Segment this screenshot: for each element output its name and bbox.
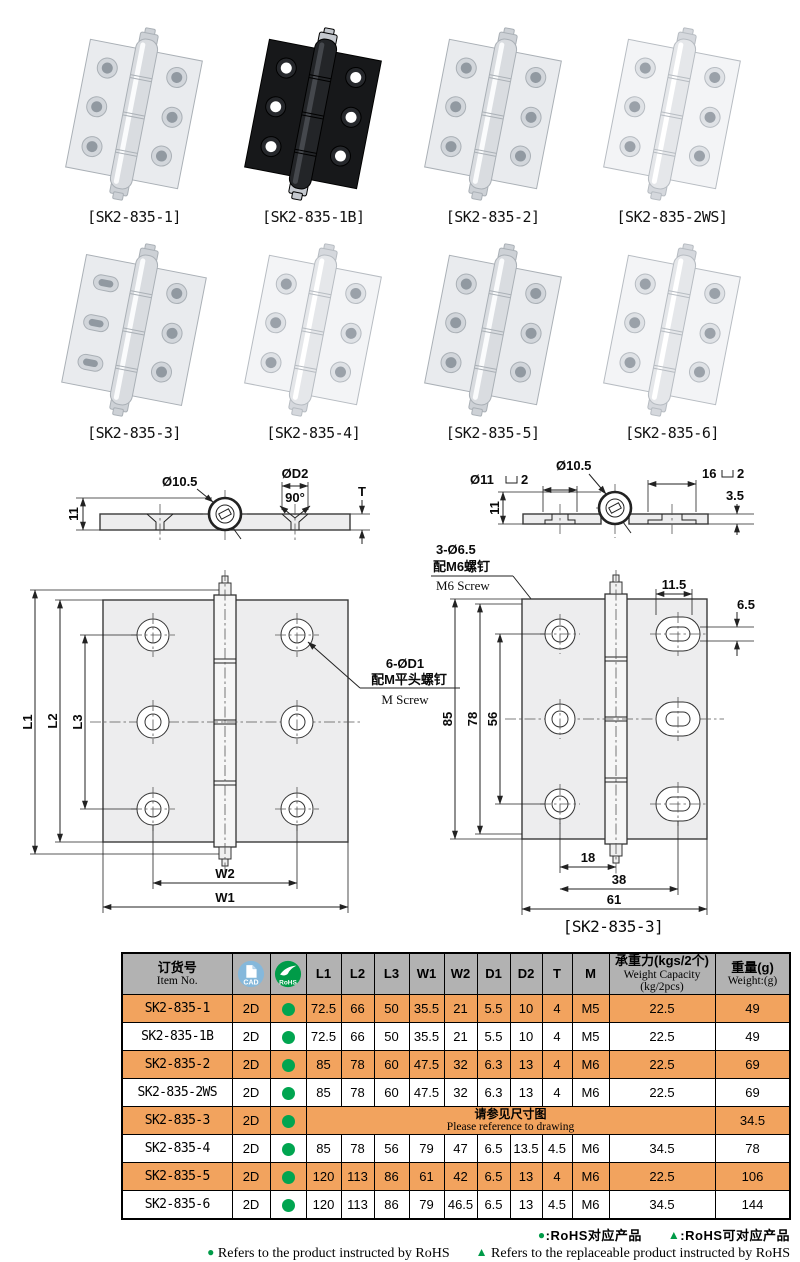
cell-l2: 66: [341, 995, 374, 1023]
cell-t: 4: [542, 1163, 572, 1191]
cell-w2: 21: [444, 1023, 477, 1051]
drawing-cross-section-right: Ø11 2 Ø10.5 16 2 3.5 11: [470, 458, 754, 538]
product-card-sk2-835-6: [SK2-835-6]: [590, 240, 754, 442]
cell-w1: 47.5: [409, 1051, 444, 1079]
cell-weight: 78: [715, 1135, 790, 1163]
cell-l3: 50: [374, 995, 409, 1023]
product-label: [SK2-835-1]: [52, 208, 216, 226]
cell-l1: 72.5: [306, 995, 341, 1023]
table-row-sk2-835-5: SK2-835-5 2D 120 113 86 61 42 6.5 13 4 M…: [122, 1163, 790, 1191]
product-label: [SK2-835-6]: [590, 424, 754, 442]
table-row-sk2-835-2ws: SK2-835-2WS 2D 85 78 60 47.5 32 6.3 13 4…: [122, 1079, 790, 1107]
drawing-cross-section-left: 11 Ø10.5 ØD2 90° T: [66, 466, 370, 544]
drawing-front-view-left: L1 L2 L3 W2 W1 6-ØD1 配M平头螺钉 M Screw: [20, 570, 460, 913]
cell-w2: 32: [444, 1079, 477, 1107]
cell-drawing-note: 请参见尺寸图 Please reference to drawing: [306, 1107, 715, 1135]
cell-item: SK2-835-1: [122, 995, 232, 1023]
table-row-sk2-835-2: SK2-835-2 2D 85 78 60 47.5 32 6.3 13 4 M…: [122, 1051, 790, 1079]
cell-l3: 60: [374, 1079, 409, 1107]
product-gallery: [SK2-835-1] [SK2-835-1B] [SK2-835-2] [SK…: [0, 0, 800, 442]
product-label: [SK2-835-4]: [231, 424, 395, 442]
table-row-sk2-835-6: SK2-835-6 2D 120 113 86 79 46.5 6.5 13 4…: [122, 1191, 790, 1220]
cell-w1: 35.5: [409, 995, 444, 1023]
product-card-sk2-835-2: [SK2-835-2]: [411, 24, 575, 226]
dim-L3: L3: [70, 714, 85, 729]
rohs-dot: [282, 1199, 295, 1212]
cell-m: M5: [572, 995, 609, 1023]
cell-t: 4: [542, 1079, 572, 1107]
col-item-no: 订货号 Item No.: [122, 953, 232, 995]
spec-table: 订货号 Item No. CAD RoHS: [121, 952, 791, 1220]
cell-d1: 5.5: [477, 995, 510, 1023]
cell-cad: 2D: [232, 1191, 270, 1220]
table-row-sk2-835-1b: SK2-835-1B 2D 72.5 66 50 35.5 21 5.5 10 …: [122, 1023, 790, 1051]
cell-w1: 79: [409, 1135, 444, 1163]
cell-capacity: 22.5: [609, 1023, 715, 1051]
cell-l1: 120: [306, 1163, 341, 1191]
cell-d1: 6.3: [477, 1051, 510, 1079]
col-w1: W1: [409, 953, 444, 995]
hinge-photo: [238, 240, 388, 420]
cell-w2: 21: [444, 995, 477, 1023]
table-row-sk2-835-4: SK2-835-4 2D 85 78 56 79 47 6.5 13.5 4.5…: [122, 1135, 790, 1163]
product-card-sk2-835-3: [SK2-835-3]: [52, 240, 216, 442]
dim-11-5: 11.5: [662, 577, 687, 592]
cell-item: SK2-835-2: [122, 1051, 232, 1079]
cell-l2: 78: [341, 1051, 374, 1079]
cell-cad: 2D: [232, 1079, 270, 1107]
green-triangle-icon: ▲: [668, 1228, 680, 1242]
green-dot-icon: ●: [207, 1245, 214, 1259]
cell-m: M6: [572, 1191, 609, 1220]
rohs-dot: [282, 1003, 295, 1016]
table-header-row: 订货号 Item No. CAD RoHS: [122, 953, 790, 995]
cell-l3: 50: [374, 1023, 409, 1051]
col-m: M: [572, 953, 609, 995]
col-d1: D1: [477, 953, 510, 995]
callout-hole-spec: 3-Ø6.5: [436, 542, 476, 557]
dim-counterbore-diameter: Ø11: [470, 472, 494, 487]
cell-m: M6: [572, 1163, 609, 1191]
cell-t: 4.5: [542, 1135, 572, 1163]
cell-m: M5: [572, 1023, 609, 1051]
cell-weight: 106: [715, 1163, 790, 1191]
cell-rohs: [270, 1023, 306, 1051]
cell-l1: 85: [306, 1079, 341, 1107]
dim-slot-counterbore-width: 16: [702, 466, 716, 481]
cell-d2: 13.5: [510, 1135, 542, 1163]
cell-l1: 120: [306, 1191, 341, 1220]
cell-cad: 2D: [232, 1051, 270, 1079]
cell-weight: 144: [715, 1191, 790, 1220]
dim-L2: L2: [45, 713, 60, 728]
dim-18: 18: [581, 850, 595, 865]
cell-cad: 2D: [232, 1107, 270, 1135]
col-w2: W2: [444, 953, 477, 995]
cell-item: SK2-835-6: [122, 1191, 232, 1220]
cell-m: M6: [572, 1135, 609, 1163]
cell-l3: 86: [374, 1163, 409, 1191]
cell-capacity: 34.5: [609, 1191, 715, 1220]
drawing-caption: [SK2-835-3]: [563, 917, 663, 936]
product-row-2: [SK2-835-3] [SK2-835-4] [SK2-835-5] [SK2…: [52, 240, 754, 442]
dim-78: 78: [465, 712, 480, 726]
table-row-sk2-835-3: SK2-835-3 2D 请参见尺寸图 Please reference to …: [122, 1107, 790, 1135]
spec-section: 订货号 Item No. CAD RoHS: [121, 952, 790, 1220]
cell-item: SK2-835-4: [122, 1135, 232, 1163]
col-l1: L1: [306, 953, 341, 995]
rohs-dot: [282, 1143, 295, 1156]
cell-rohs: [270, 1079, 306, 1107]
hinge-photo: [418, 240, 568, 420]
hinge-photo: [238, 24, 388, 204]
dim-L1: L1: [20, 714, 35, 729]
dim-W2: W2: [215, 866, 235, 881]
green-dot-icon: ●: [538, 1228, 546, 1242]
cell-capacity: 22.5: [609, 995, 715, 1023]
cell-capacity: 34.5: [609, 1135, 715, 1163]
cell-w1: 35.5: [409, 1023, 444, 1051]
dim-pin-diameter-right: Ø10.5: [556, 458, 591, 473]
product-card-sk2-835-4: [SK2-835-4]: [231, 240, 395, 442]
cell-d1: 6.5: [477, 1163, 510, 1191]
col-t: T: [542, 953, 572, 995]
product-label: [SK2-835-3]: [52, 424, 216, 442]
cell-l3: 86: [374, 1191, 409, 1220]
cell-m: M6: [572, 1079, 609, 1107]
cell-weight: 69: [715, 1079, 790, 1107]
dim-thickness: T: [358, 484, 366, 499]
cell-cad: 2D: [232, 1135, 270, 1163]
dim-61: 61: [607, 892, 621, 907]
cell-l1: 85: [306, 1051, 341, 1079]
product-label: [SK2-835-5]: [411, 424, 575, 442]
rohs-dot: [282, 1087, 295, 1100]
cell-capacity: 22.5: [609, 1079, 715, 1107]
hinge-photo: [59, 240, 209, 420]
hinge-photo: [59, 24, 209, 204]
rohs-dot: [282, 1031, 295, 1044]
product-card-sk2-835-5: [SK2-835-5]: [411, 240, 575, 442]
cell-item: SK2-835-2WS: [122, 1079, 232, 1107]
cell-cad: 2D: [232, 1023, 270, 1051]
rohs-dot: [282, 1059, 295, 1072]
rohs-icon: RoHS: [274, 960, 302, 988]
hinge-photo: [597, 240, 747, 420]
dim-pin-diameter: Ø10.5: [162, 474, 197, 489]
cell-capacity: 22.5: [609, 1051, 715, 1079]
col-d2: D2: [510, 953, 542, 995]
cell-rohs: [270, 1191, 306, 1220]
product-card-sk2-835-1: [SK2-835-1]: [52, 24, 216, 226]
hinge-photo: [597, 24, 747, 204]
cell-weight: 49: [715, 1023, 790, 1051]
cad-icon: CAD: [237, 960, 265, 988]
callout-screw-en: M6 Screw: [436, 578, 490, 593]
cell-w1: 61: [409, 1163, 444, 1191]
callout-screw-cn-left: 配M平头螺钉: [371, 672, 447, 687]
cell-w2: 46.5: [444, 1191, 477, 1220]
col-rohs: RoHS: [270, 953, 306, 995]
dim-overall-height: 11: [66, 507, 81, 521]
cell-l2: 66: [341, 1023, 374, 1051]
cell-t: 4.5: [542, 1191, 572, 1220]
dim-38: 38: [612, 872, 626, 887]
cell-capacity: 22.5: [609, 1163, 715, 1191]
product-label: [SK2-835-2WS]: [590, 208, 754, 226]
cell-t: 4: [542, 995, 572, 1023]
col-l2: L2: [341, 953, 374, 995]
dim-6-5: 6.5: [737, 597, 755, 612]
cell-l3: 60: [374, 1051, 409, 1079]
cell-rohs: [270, 1107, 306, 1135]
dim-countersink-diameter: ØD2: [282, 466, 309, 481]
cell-rohs: [270, 1163, 306, 1191]
cell-d1: 6.3: [477, 1079, 510, 1107]
green-triangle-icon: ▲: [476, 1245, 488, 1259]
product-label: [SK2-835-2]: [411, 208, 575, 226]
cell-l1: 85: [306, 1135, 341, 1163]
callout-screw-en-left: M Screw: [381, 692, 429, 707]
cell-t: 4: [542, 1051, 572, 1079]
dim-85: 85: [440, 712, 455, 726]
dim-plate-thickness: 3.5: [726, 488, 744, 503]
col-capacity: 承重力(kgs/2个) Weight Capacity (kg/2pcs): [609, 953, 715, 995]
rohs-dot: [282, 1115, 295, 1128]
cell-d2: 13: [510, 1079, 542, 1107]
cell-w2: 42: [444, 1163, 477, 1191]
cell-capacity: 34.5: [715, 1107, 790, 1135]
cell-d1: 6.5: [477, 1135, 510, 1163]
cell-l3: 56: [374, 1135, 409, 1163]
dim-counterbore-depth: 2: [521, 472, 528, 487]
cell-w2: 47: [444, 1135, 477, 1163]
cell-rohs: [270, 1051, 306, 1079]
cell-d2: 13: [510, 1191, 542, 1220]
cell-item: SK2-835-3: [122, 1107, 232, 1135]
dim-W1: W1: [215, 890, 235, 905]
col-weight: 重量(g) Weight:(g): [715, 953, 790, 995]
cell-l2: 78: [341, 1079, 374, 1107]
cell-item: SK2-835-1B: [122, 1023, 232, 1051]
cell-cad: 2D: [232, 995, 270, 1023]
cell-t: 4: [542, 1023, 572, 1051]
product-card-sk2-835-1b: [SK2-835-1B]: [231, 24, 395, 226]
cell-rohs: [270, 995, 306, 1023]
product-row-1: [SK2-835-1] [SK2-835-1B] [SK2-835-2] [SK…: [52, 24, 754, 226]
rohs-note-cn: ●:RoHS对应产品▲:RoHS可对应产品: [121, 1225, 790, 1244]
cell-l1: 72.5: [306, 1023, 341, 1051]
callout-screw-cn: 配M6螺钉: [433, 559, 490, 574]
technical-drawings: 11 Ø10.5 ØD2 90° T Ø11 2 Ø10.5: [0, 442, 800, 942]
cell-d2: 13: [510, 1163, 542, 1191]
svg-text:CAD: CAD: [243, 980, 258, 987]
cell-d2: 10: [510, 995, 542, 1023]
cell-d1: 6.5: [477, 1191, 510, 1220]
drawing-sheet: 11 Ø10.5 ØD2 90° T Ø11 2 Ø10.5: [0, 442, 800, 942]
product-label: [SK2-835-1B]: [231, 208, 395, 226]
table-row-sk2-835-1: SK2-835-1 2D 72.5 66 50 35.5 21 5.5 10 4…: [122, 995, 790, 1023]
cell-cad: 2D: [232, 1163, 270, 1191]
cell-item: SK2-835-5: [122, 1163, 232, 1191]
cell-w1: 79: [409, 1191, 444, 1220]
dim-slot-counterbore-depth: 2: [737, 466, 744, 481]
product-card-sk2-835-2ws: [SK2-835-2WS]: [590, 24, 754, 226]
cell-d2: 10: [510, 1023, 542, 1051]
cell-w2: 32: [444, 1051, 477, 1079]
cell-l2: 113: [341, 1163, 374, 1191]
cell-weight: 69: [715, 1051, 790, 1079]
dim-56: 56: [485, 712, 500, 726]
dim-overall-height-right: 11: [487, 501, 502, 515]
cell-w1: 47.5: [409, 1079, 444, 1107]
cell-d1: 5.5: [477, 1023, 510, 1051]
cell-l2: 113: [341, 1191, 374, 1220]
rohs-dot: [282, 1171, 295, 1184]
svg-text:RoHS: RoHS: [279, 979, 297, 986]
dim-countersink-angle: 90°: [285, 490, 305, 505]
hinge-photo: [418, 24, 568, 204]
callout-hole-spec-left: 6-ØD1: [386, 656, 424, 671]
cell-m: M6: [572, 1051, 609, 1079]
cell-weight: 49: [715, 995, 790, 1023]
cell-l2: 78: [341, 1135, 374, 1163]
cell-rohs: [270, 1135, 306, 1163]
col-cad: CAD: [232, 953, 270, 995]
col-l3: L3: [374, 953, 409, 995]
drawing-front-view-right: 85 78 56 18 38 61 11.5 6.5 [SK2-835-3]: [440, 570, 755, 936]
cell-d2: 13: [510, 1051, 542, 1079]
rohs-note-en: ● Refers to the product instructed by Ro…: [121, 1245, 790, 1262]
rohs-footnotes: ●:RoHS对应产品▲:RoHS可对应产品 ● Refers to the pr…: [121, 1225, 790, 1262]
